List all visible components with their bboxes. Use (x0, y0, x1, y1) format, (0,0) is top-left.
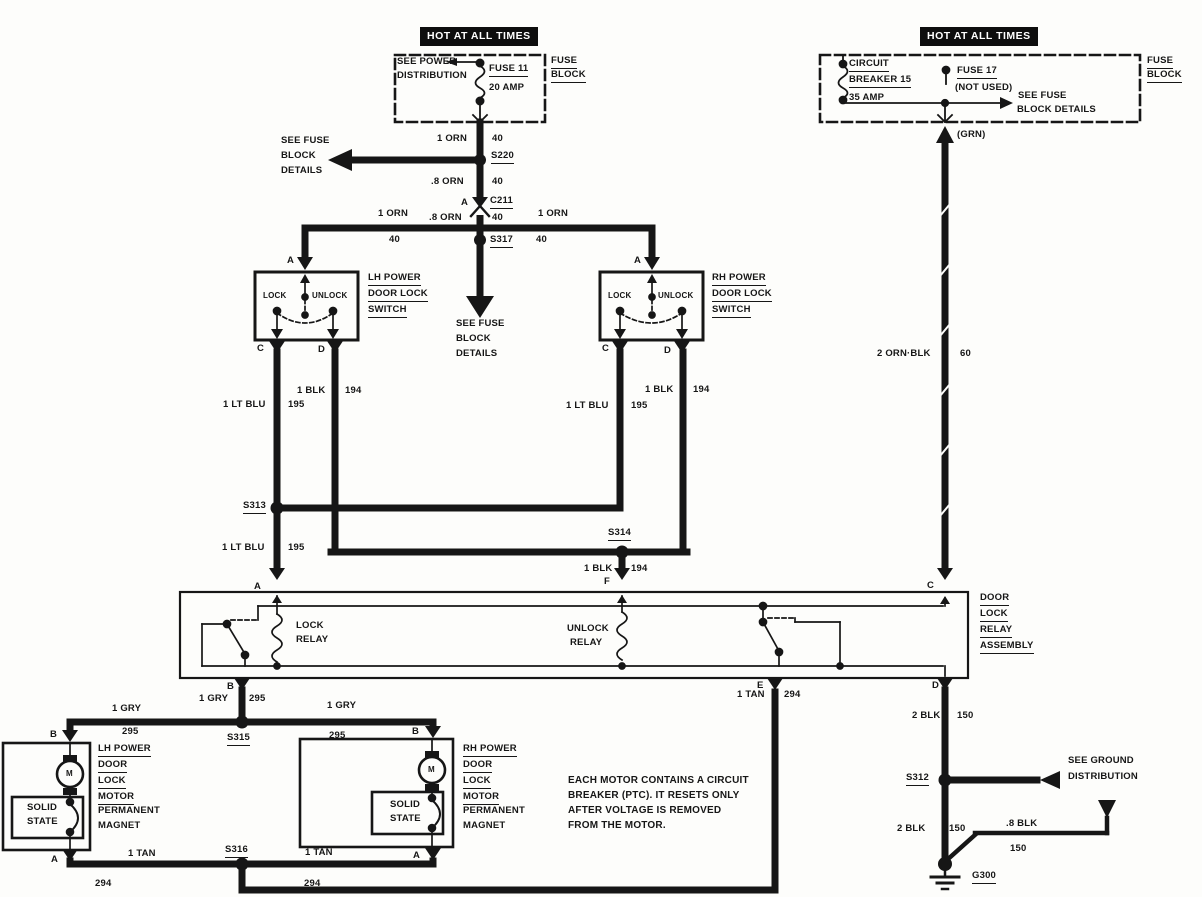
lh-switch-internals (271, 274, 339, 339)
lock-relay-2: RELAY (296, 635, 328, 646)
rh-motor-name-5: PERMANENT (463, 806, 525, 817)
lh-switch-lock: LOCK (263, 291, 286, 300)
see-power-distribution-line1: SEE POWER (397, 57, 456, 68)
note-line1: EACH MOTOR CONTAINS A CIRCUIT (568, 775, 749, 787)
c211-connector-icon (470, 197, 490, 216)
wire-40-2: 40 (492, 177, 503, 188)
lh-switch-pin-a: A (287, 256, 294, 267)
wire-ltblu-lh: 1 LT BLU (223, 400, 266, 411)
relay-pin-d: D (932, 681, 939, 692)
lh-motor-pin-b-connector-icon (62, 730, 78, 742)
see-ground-distribution-2: DISTRIBUTION (1068, 772, 1138, 783)
wire-194-lh: 194 (345, 386, 361, 397)
rh-switch-name-2: DOOR LOCK (712, 289, 772, 302)
wire-8blk: .8 BLK (1006, 819, 1037, 830)
lh-switch-pin-c: C (257, 344, 264, 355)
lh-switch-name-2: DOOR LOCK (368, 289, 428, 302)
rh-motor-name-2: DOOR (463, 760, 492, 773)
lh-switch-name-3: SWITCH (368, 305, 407, 318)
wire-40-3: 40 (492, 213, 503, 224)
see-ground-distribution-1: SEE GROUND (1068, 756, 1134, 767)
splice-s220: S220 (491, 151, 514, 164)
see-fuse-details-mid-3: DETAILS (456, 349, 497, 360)
rh-solid-state-2: STATE (390, 814, 421, 825)
wire-295-left: 295 (122, 727, 138, 738)
rh-switch-internals (614, 274, 688, 339)
lh-motor-box (3, 743, 90, 850)
see-fuse-block-left-arrow-icon (328, 149, 352, 171)
fuse-11-rating: 20 AMP (489, 83, 524, 94)
see-fuse-details-right-1: SEE FUSE (1018, 91, 1067, 102)
rh-motor-pin-a: A (413, 851, 420, 862)
wire-195-lh2: 195 (288, 543, 304, 554)
fuse-block-right-line1: FUSE (1147, 56, 1173, 69)
lh-motor-name-2: DOOR (98, 760, 127, 773)
note-line2: BREAKER (PTC). IT RESETS ONLY (568, 790, 740, 802)
relay-pin-c-connector-icon (937, 568, 953, 580)
wire-194-rh: 194 (693, 385, 709, 396)
relay-pin-a-connector-icon (269, 568, 285, 580)
see-power-distribution-line2: DISTRIBUTION (397, 71, 467, 82)
relay-assembly-2: LOCK (980, 609, 1008, 622)
lh-motor-name-5: PERMANENT (98, 806, 160, 817)
relay-assembly-1: DOOR (980, 593, 1009, 606)
lh-motor-name-4: MOTOR (98, 792, 134, 805)
see-fuse-details-left-2: BLOCK (281, 151, 316, 162)
g300-ground-symbol (931, 857, 959, 889)
splice-s314: S314 (608, 528, 631, 541)
lh-solid-state-1: SOLID (27, 803, 57, 814)
fuse-block-left-line2: BLOCK (551, 70, 586, 83)
rh-switch-pin-d: D (664, 346, 671, 357)
rh-motor-m: M (428, 765, 435, 774)
fuse-17-symbol (943, 67, 950, 85)
wire-8orn-1: .8 ORN (431, 177, 464, 188)
fuse-11-name: FUSE 11 (489, 64, 528, 77)
rh-motor-pin-b: B (412, 727, 419, 738)
see-fuse-details-mid-1: SEE FUSE (456, 319, 505, 330)
wire-tan-left: 1 TAN (128, 849, 156, 860)
splice-s313: S313 (243, 501, 266, 514)
wire-150-8blk: 150 (1010, 844, 1026, 855)
splice-s312: S312 (906, 773, 929, 786)
splice-s315: S315 (227, 733, 250, 746)
wire-tan-e: 1 TAN (737, 690, 765, 701)
wire-gry-left: 1 GRY (112, 704, 141, 715)
relay-pin-f-connector-icon (614, 568, 630, 580)
ground-g300: G300 (972, 871, 996, 884)
splice-s317-dot (474, 234, 486, 246)
fuse-17-name: FUSE 17 (957, 66, 997, 79)
rh-motor-pin-b-connector-icon (425, 726, 441, 738)
note-line3: AFTER VOLTAGE IS REMOVED (568, 805, 721, 817)
wire-60: 60 (960, 349, 971, 360)
lh-switch-unlock: UNLOCK (312, 291, 347, 300)
wire-gry-right: 1 GRY (327, 701, 356, 712)
circuit-breaker-name-1: CIRCUIT (849, 59, 889, 72)
splice-s317: S317 (490, 235, 513, 248)
rh-switch-unlock: UNLOCK (658, 291, 693, 300)
wire-2blk-bot: 2 BLK (897, 824, 925, 835)
rh-motor-name-3: LOCK (463, 776, 491, 789)
relay-pin-e-connector-icon (767, 678, 783, 690)
conn-c211: C211 (490, 196, 513, 209)
relay-pin-b: B (227, 682, 234, 693)
wire-195-lh: 195 (288, 400, 304, 411)
lock-relay-1: LOCK (296, 621, 324, 632)
wire-1orn-bus-left: 1 ORN (378, 209, 408, 220)
lh-motor-name-6: MAGNET (98, 821, 140, 832)
fuse-block-left-line1: FUSE (551, 56, 577, 69)
wire-1orn-top: 1 ORN (437, 134, 467, 145)
lh-switch-name-1: LH POWER (368, 273, 421, 286)
lh-solid-state-2: STATE (27, 817, 58, 828)
conn-c211-pin-a: A (461, 198, 468, 209)
splice-s316: S316 (225, 845, 248, 858)
wire-40-top: 40 (492, 134, 503, 145)
see-fuse-block-down-arrow-icon (466, 296, 494, 318)
relay-pin-a: A (254, 582, 261, 593)
rh-switch-pin-c: C (602, 344, 609, 355)
wire-40-bus-right: 40 (536, 235, 547, 246)
relay-pin-f: F (604, 577, 610, 588)
rh-switch-name-3: SWITCH (712, 305, 751, 318)
splice-s220-dot (474, 154, 486, 166)
lh-motor-name-3: LOCK (98, 776, 126, 789)
rh-solid-state-1: SOLID (390, 800, 420, 811)
see-fuse-details-left-3: DETAILS (281, 166, 322, 177)
wire-294-left: 294 (95, 879, 111, 890)
fuse-17-not-used: (NOT USED) (955, 83, 1012, 94)
rh-switch-pin-a: A (634, 256, 641, 267)
wire-195-rh: 195 (631, 401, 647, 412)
wire-ltblu-rh: 1 LT BLU (566, 401, 609, 412)
splice-s314-dot (616, 546, 629, 559)
relay-assembly-4: ASSEMBLY (980, 641, 1034, 654)
note-line4: FROM THE MOTOR. (568, 820, 666, 832)
wire-294-right: 294 (304, 879, 320, 890)
circuit-breaker-rating: 35 AMP (849, 93, 884, 104)
wire-294-e: 294 (784, 690, 800, 701)
wire-194-s314: 194 (631, 564, 647, 575)
splice-s316-dot (236, 858, 249, 871)
wire-2ornblk: 2 ORN·BLK (877, 349, 931, 360)
unlock-relay-2: RELAY (570, 638, 602, 649)
wire-blk-lh: 1 BLK (297, 386, 325, 397)
see-fuse-details-right-2: BLOCK DETAILS (1017, 105, 1096, 116)
ground-branch-arrow-icon (1098, 800, 1116, 818)
wire-40-bus-left: 40 (389, 235, 400, 246)
splice-s315-dot (236, 716, 249, 729)
rh-motor-name-1: RH POWER (463, 744, 517, 757)
wire-2blk-top: 2 BLK (912, 711, 940, 722)
lh-switch-pin-d: D (318, 345, 325, 356)
hot-at-all-times-banner-left: HOT AT ALL TIMES (420, 27, 538, 46)
rh-motor-pin-a-connector-icon (425, 848, 441, 860)
hot-at-all-times-banner-right: HOT AT ALL TIMES (920, 27, 1038, 46)
wire-gry-b: 1 GRY (199, 694, 228, 705)
lh-motor-m: M (66, 769, 73, 778)
fuse-block-right-line2: BLOCK (1147, 70, 1182, 83)
rh-pin-a-connector-icon (644, 257, 660, 270)
lh-motor-name-1: LH POWER (98, 744, 151, 757)
wire-8orn-2: .8 ORN (429, 213, 462, 224)
lh-pin-a-connector-icon (297, 257, 313, 270)
wire-grn: (GRN) (957, 130, 985, 141)
circuit-breaker-name-2: BREAKER 15 (849, 75, 911, 88)
see-fuse-details-mid-2: BLOCK (456, 334, 491, 345)
wire-150-top: 150 (957, 711, 973, 722)
wire-blk-rh: 1 BLK (645, 385, 673, 396)
relay-pin-c: C (927, 581, 934, 592)
see-fuse-details-left-1: SEE FUSE (281, 136, 330, 147)
lh-motor-pin-a: A (51, 855, 58, 866)
rh-switch-name-1: RH POWER (712, 273, 766, 286)
wire-1orn-bus-right: 1 ORN (538, 209, 568, 220)
see-ground-distribution-arrow-icon (1040, 771, 1060, 789)
lh-motor-pin-b: B (50, 730, 57, 741)
see-fuse-block-arrow-icon (1000, 97, 1013, 109)
rh-motor-name-6: MAGNET (463, 821, 505, 832)
splice-s313-dot (271, 502, 284, 515)
wire-ltblu-lh2: 1 LT BLU (222, 543, 265, 554)
relay-assembly-3: RELAY (980, 625, 1012, 638)
wire-blk-s314: 1 BLK (584, 564, 612, 575)
wire-150-bot: 150 (949, 824, 965, 835)
wire-tan-right: 1 TAN (305, 848, 333, 859)
rh-motor-name-4: MOTOR (463, 792, 499, 805)
splice-s312-dot (939, 774, 952, 787)
rh-switch-lock: LOCK (608, 291, 631, 300)
wiring-diagram-artwork (0, 0, 1202, 897)
unlock-relay-1: UNLOCK (567, 624, 609, 635)
rh-motor-box (300, 739, 453, 847)
wire-295-right: 295 (329, 731, 345, 742)
wire-295-b: 295 (249, 694, 265, 705)
wiring-diagram-page: HOT AT ALL TIMES HOT AT ALL TIMES SEE PO… (0, 0, 1202, 897)
